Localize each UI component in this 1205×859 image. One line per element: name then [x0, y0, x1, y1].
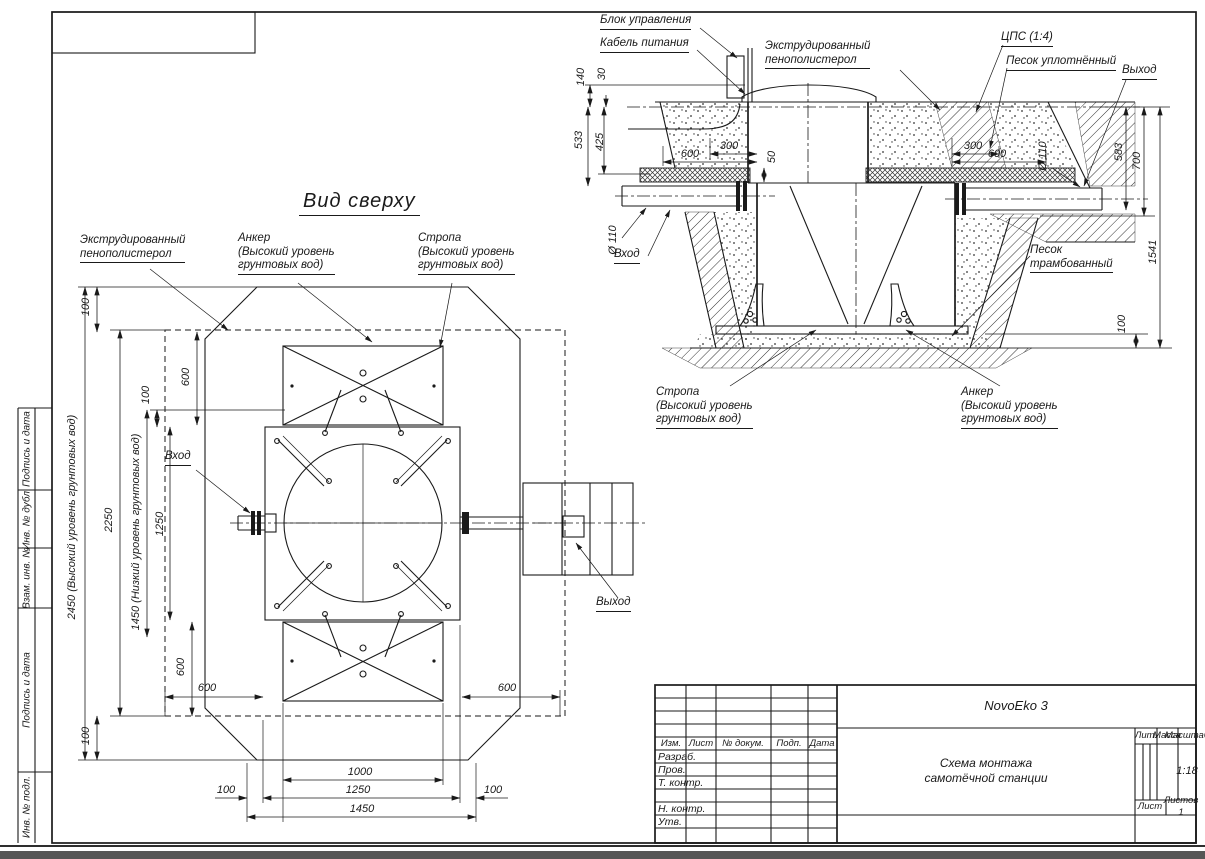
dim-600-bottom-v: 600	[175, 658, 187, 676]
dim-600-bottom-left: 600	[198, 682, 216, 694]
dim-700: 700	[1131, 152, 1143, 170]
row-prov: Пров.	[658, 764, 686, 776]
anchor-label-section: Анкер (Высокий уровень грунтовых вод)	[961, 386, 1058, 429]
dim-2450: 2450 (Высокий уровень грунтовых вод)	[66, 415, 78, 620]
dim-533: 533	[573, 131, 585, 149]
foam-label-section: Экструдированный пенополистерол	[765, 40, 870, 69]
dim-100-bed: 100	[1116, 315, 1128, 333]
dim-140: 140	[575, 68, 587, 86]
dim-1250-left: 1250	[154, 512, 166, 536]
dim-100-bottom-right: 100	[484, 784, 502, 796]
column-data: Дата	[809, 738, 834, 750]
foam-label-top: Экструдированный пенополистерол	[80, 234, 185, 263]
compacted-sand-label: Песок уплотнённый	[1006, 55, 1116, 71]
row-n-kontr: Н. контр.	[658, 803, 705, 815]
cell-sheet: Лист	[1138, 801, 1162, 813]
dim-dia-outlet: Ø 110	[1037, 141, 1049, 170]
dim-100-bottom-left-v: 100	[80, 727, 92, 745]
section-view-linework	[585, 28, 1172, 386]
dim-1541: 1541	[1147, 240, 1159, 264]
dim-dia-inlet: Ø 110	[607, 225, 619, 254]
sling-label-section: Стропа (Высокий уровень грунтовых вод)	[656, 386, 753, 429]
document-title: Схема монтажа самотёчной станции	[924, 756, 1047, 786]
margin-cell-signature-date-1: Подпись и дата	[22, 411, 33, 487]
sheet-bottom-edge	[0, 845, 1205, 847]
bottom-bar	[0, 851, 1205, 859]
dim-600-left-top: 600	[180, 368, 192, 386]
product-name: NovoEko 3	[984, 698, 1048, 714]
column-list: Лист	[689, 738, 713, 750]
top-view-title: Вид сверху	[299, 190, 420, 216]
margin-cell-vzam-inv: Взам. инв. №	[22, 547, 33, 609]
cell-masshtab: Масштаб	[1165, 730, 1205, 742]
scale-value: 1:18	[1176, 765, 1197, 779]
drawing-sheet: Блок управления Кабель питания Экструдир…	[0, 0, 1205, 859]
dim-100-top: 100	[80, 298, 92, 316]
cell-sheets-count: Листов 1	[1164, 795, 1199, 819]
top-view-linework	[78, 269, 648, 822]
dim-30: 30	[596, 68, 608, 80]
row-t-kontr: Т. контр.	[658, 777, 703, 789]
row-razrab: Разраб.	[658, 751, 696, 763]
margin-cell-inv-dupl: Инв. № дубл.	[22, 488, 33, 550]
margin-cell-inv-podl: Инв. № подл.	[22, 776, 33, 838]
dim-583: 583	[1113, 143, 1125, 161]
dim-100-bottom-left: 100	[217, 784, 235, 796]
cps-label: ЦПС (1:4)	[1001, 31, 1053, 47]
dim-600-right-section: 600	[988, 148, 1006, 160]
outlet-label-top: Выход	[596, 596, 631, 612]
row-utv: Утв.	[658, 816, 682, 828]
sling-label-top: Стропа (Высокий уровень грунтовых вод)	[418, 232, 515, 275]
dim-600-left-section: 600	[681, 148, 699, 160]
inlet-label-top: Вход	[165, 450, 191, 466]
dim-2250: 2250	[103, 508, 115, 532]
dim-425: 425	[594, 133, 606, 151]
margin-cell-signature-date-2: Подпись и дата	[22, 652, 33, 728]
anchor-label-top: Анкер (Высокий уровень грунтовых вод)	[238, 232, 335, 275]
column-podpis: Подп.	[776, 738, 801, 750]
drawing-linework	[0, 0, 1205, 859]
rammed-sand-label: Песок трамбованный	[1030, 244, 1113, 273]
dim-1450-level: 1450 (Низкий уровень грунтовых вод)	[130, 434, 142, 631]
dim-300-left-section: 300	[720, 140, 738, 152]
column-izm: Изм.	[661, 738, 681, 750]
dim-100-mid: 100	[140, 386, 152, 404]
column-doc-number: № докум.	[722, 738, 764, 750]
dim-1250-bottom: 1250	[346, 784, 370, 796]
dim-600-bottom-right: 600	[498, 682, 516, 694]
outlet-label-section: Выход	[1122, 64, 1157, 80]
dim-1000: 1000	[348, 766, 372, 778]
control-unit-label: Блок управления	[600, 14, 691, 30]
dim-50: 50	[766, 151, 778, 163]
power-cable-label: Кабель питания	[600, 37, 689, 53]
dim-1450-bottom: 1450	[350, 803, 374, 815]
dim-300-right-section: 300	[964, 140, 982, 152]
